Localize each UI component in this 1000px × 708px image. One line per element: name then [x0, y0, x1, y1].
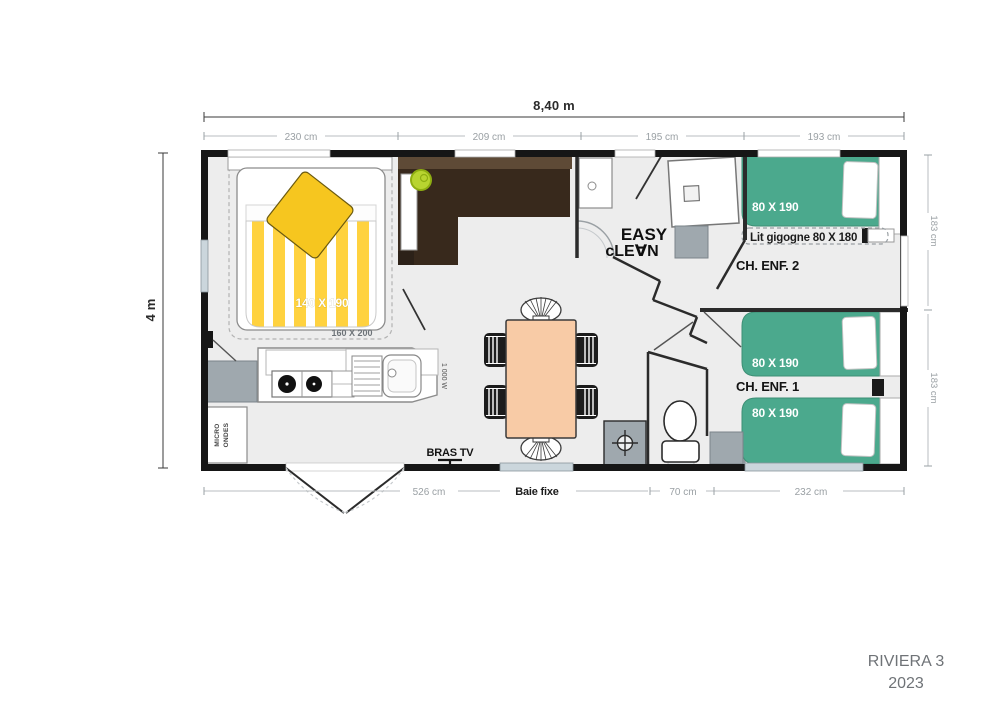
- master-bedroom: 140 X 190 160 X 200: [228, 157, 392, 339]
- microwave: MICRO ONDES: [205, 407, 247, 463]
- sofa-back: [398, 156, 572, 169]
- chair: [484, 333, 508, 367]
- faucet: [388, 369, 396, 377]
- chair: [574, 333, 598, 367]
- pillow: [842, 316, 877, 369]
- dim-right-segments: 183 cm 183 cm: [924, 155, 939, 466]
- fridge: [204, 361, 257, 402]
- floor-plan-page: 140 X 190 160 X 200 1: [0, 0, 1000, 708]
- dim-total-width-label: 8,40 m: [533, 98, 575, 113]
- stool-top: [521, 297, 561, 323]
- door-opening: [286, 463, 404, 471]
- wall-stub: [862, 228, 868, 243]
- room-label-ch2: CH. ENF. 2: [736, 258, 799, 273]
- room-label-ch1: CH. ENF. 1: [736, 379, 799, 394]
- chair: [574, 385, 598, 419]
- dim-top-2: 209 cm: [473, 132, 506, 143]
- baie-fixe-label: Baie fixe: [515, 486, 559, 498]
- sofa-top-seat: [458, 169, 570, 217]
- easy-clean-logo-line1: EASY: [621, 225, 668, 244]
- pillow: [842, 161, 878, 218]
- bed-step: [868, 229, 894, 242]
- water-heater: [604, 421, 646, 465]
- master-bed-option-size: 160 X 200: [331, 328, 372, 338]
- master-bed-size: 140 X 190: [296, 296, 349, 310]
- washbasin-drain: [588, 182, 596, 190]
- dim-bottom-1: 526 cm: [413, 487, 446, 498]
- microwave-label-2: ONDES: [223, 422, 230, 447]
- bed-size-ch1-bottom: 80 X 190: [752, 406, 799, 420]
- bedroom-cabinet: [710, 432, 743, 464]
- dim-bottom-3: 232 cm: [795, 487, 828, 498]
- bed-size-ch2: 80 X 190: [752, 200, 799, 214]
- sink-drainboard: [352, 356, 382, 396]
- hood-power-label: 1 000 W: [440, 363, 447, 389]
- dim-top-1: 230 cm: [285, 132, 318, 143]
- bed-board: [879, 156, 902, 234]
- chair: [484, 385, 508, 419]
- dim-total-depth-label: 4 m: [143, 298, 158, 321]
- dim-top-segments: 230 cm 209 cm 195 cm 193 cm: [204, 129, 904, 143]
- dim-right-2: 183 cm: [928, 372, 939, 403]
- pillow: [841, 403, 876, 456]
- dim-right-1: 183 cm: [928, 215, 939, 246]
- bed-board: [880, 398, 902, 464]
- sink-basin: [383, 355, 421, 397]
- dim-top-4: 193 cm: [808, 132, 841, 143]
- bathroom-cabinet: [675, 226, 708, 258]
- shower-drain: [684, 186, 700, 202]
- dim-total-width: 8,40 m: [204, 98, 904, 122]
- bed-size-ch1-top: 80 X 190: [752, 356, 799, 370]
- window-top-4: [758, 150, 840, 157]
- window-right: [901, 236, 908, 306]
- brand-year: 2023: [888, 675, 924, 692]
- window-baie-fixe: [500, 463, 573, 471]
- dim-total-depth: 4 m: [143, 153, 168, 468]
- sofa-armrest: [398, 251, 414, 265]
- shower: [668, 157, 739, 227]
- window-left: [201, 240, 208, 292]
- dim-top-3: 195 cm: [646, 132, 679, 143]
- dim-bottom-segments: 526 cm Baie fixe 70 cm 232 cm: [204, 486, 904, 498]
- floor-plan-canvas: 140 X 190 160 X 200 1: [0, 0, 1000, 708]
- window-top-2: [455, 150, 515, 157]
- window-bottom-right: [745, 463, 863, 471]
- wall-stub: [872, 379, 884, 396]
- brand: RIVIERA 3 2023: [868, 653, 945, 692]
- trundle-label: Lit gigogne 80 X 180: [750, 232, 857, 244]
- window-top-1: [228, 150, 330, 157]
- dim-bottom-2: 70 cm: [669, 487, 696, 498]
- bed-board: [880, 312, 902, 376]
- washbasin: [579, 158, 612, 208]
- window-top-3: [615, 150, 655, 157]
- microwave-label-1: MICRO: [214, 423, 221, 446]
- dining-table: [506, 320, 576, 438]
- tv-bracket-label: BRAS TV: [427, 447, 475, 459]
- stool-bottom: [521, 435, 561, 461]
- brand-model: RIVIERA 3: [868, 653, 945, 670]
